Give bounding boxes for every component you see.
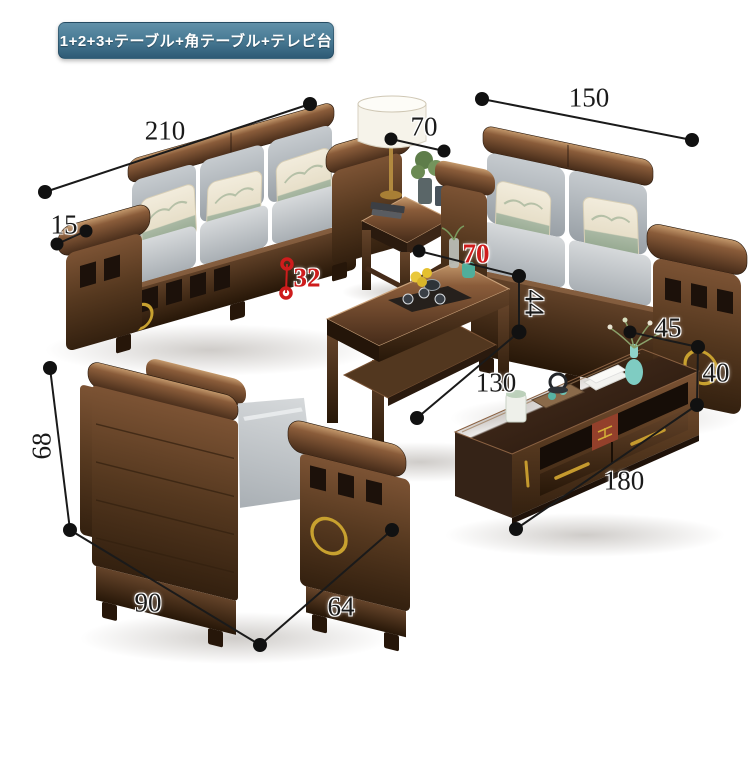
dim-label-coffee-table-depth: 70	[463, 241, 490, 268]
dim-label-side-table-width: 70	[411, 114, 438, 141]
dim-label-coffee-table-length: 130	[476, 370, 517, 397]
dim-label-armchair-width: 90	[135, 590, 162, 617]
dim-label-armchair-depth: 64	[328, 594, 355, 621]
dim-label-tv-stand-length: 180	[604, 468, 645, 495]
dim-label-seat-height: 32	[294, 265, 321, 292]
door-handle	[526, 462, 528, 486]
product-config-label: 1+2+3+テーブル+角テーブル+テレビ台	[60, 30, 333, 51]
dim-label-armchair-height: 68	[29, 433, 56, 460]
product-config-badge: 1+2+3+テーブル+角テーブル+テレビ台	[58, 22, 334, 59]
furniture-illustration	[0, 0, 750, 763]
dim-label-armrest-width: 15	[51, 212, 78, 239]
furniture-dimension-diagram: 1+2+3+テーブル+角テーブル+テレビ台 210 15 70 150 32 7…	[0, 0, 750, 763]
dim-label-tv-stand-height: 40	[703, 360, 730, 387]
bottle	[449, 238, 459, 268]
dim-label-two-seater-width: 150	[569, 85, 610, 112]
dim-label-three-seater-width: 210	[145, 118, 186, 145]
dim-label-tv-stand-depth: 45	[655, 315, 682, 342]
flower-vase	[625, 359, 643, 385]
dim-label-coffee-table-height: 44	[521, 290, 548, 317]
